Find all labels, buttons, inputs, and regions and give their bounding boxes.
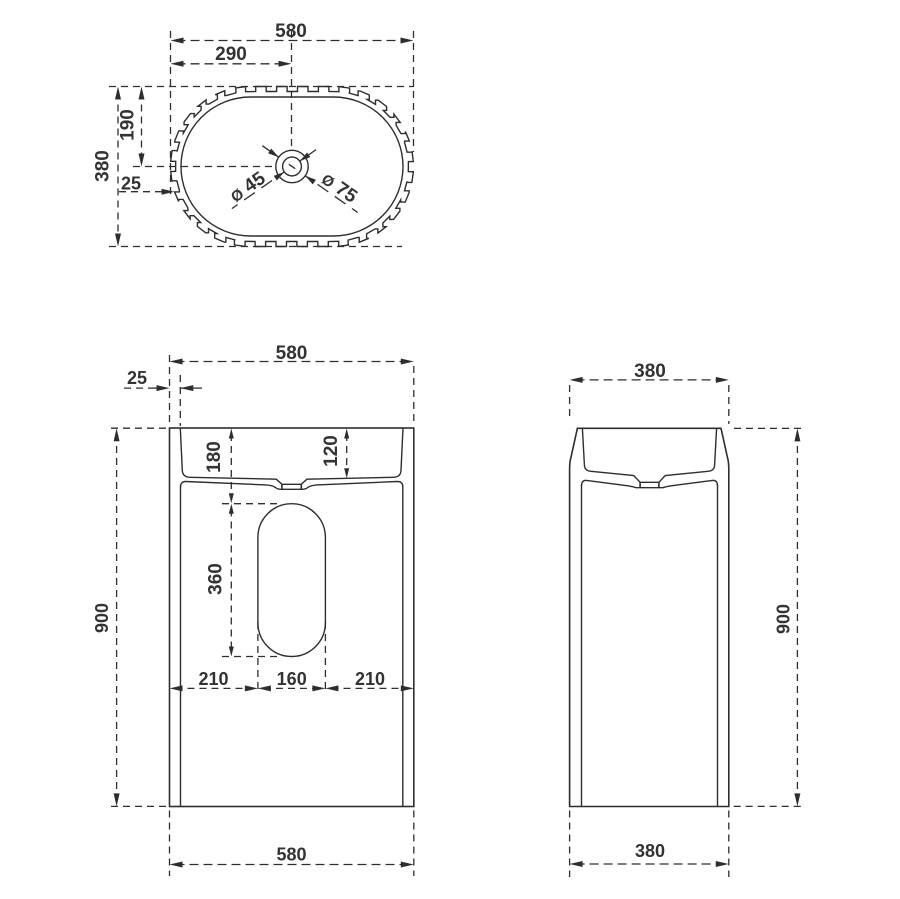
svg-text:180: 180 — [204, 441, 225, 473]
svg-text:290: 290 — [215, 44, 247, 65]
svg-text:210: 210 — [198, 669, 228, 689]
svg-text:25: 25 — [127, 368, 147, 388]
svg-text:380: 380 — [635, 841, 665, 861]
svg-text:900: 900 — [774, 604, 794, 634]
svg-text:580: 580 — [276, 845, 306, 865]
svg-text:380: 380 — [93, 150, 114, 182]
svg-text:25: 25 — [121, 174, 141, 194]
svg-text:360: 360 — [206, 563, 227, 595]
svg-text:190: 190 — [118, 109, 139, 141]
svg-text:160: 160 — [277, 669, 307, 689]
svg-text:210: 210 — [355, 669, 385, 689]
svg-text:120: 120 — [321, 435, 342, 467]
svg-text:900: 900 — [92, 603, 112, 633]
svg-text:380: 380 — [634, 361, 666, 382]
